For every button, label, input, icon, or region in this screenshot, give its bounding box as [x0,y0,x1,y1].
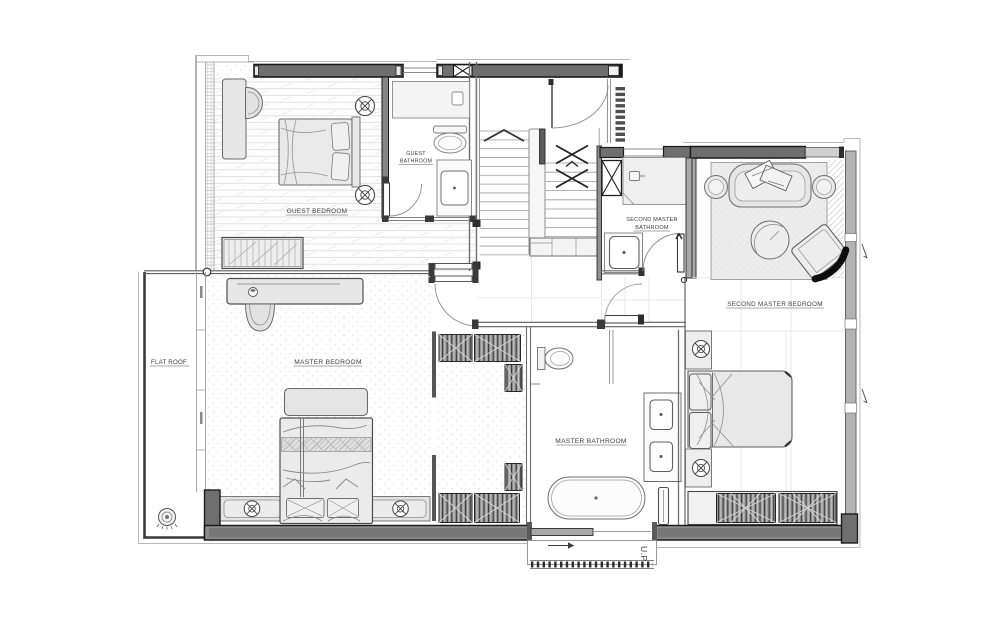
svg-text:SECOND MASTER: SECOND MASTER [626,217,677,223]
svg-text:GUEST BEDROOM: GUEST BEDROOM [287,208,348,215]
svg-text:U.P: U.P [639,546,649,562]
svg-text:SECOND MASTER BEDROOM: SECOND MASTER BEDROOM [727,301,823,308]
svg-text:BATHROOM: BATHROOM [635,225,669,231]
svg-text:MASTER BEDROOM: MASTER BEDROOM [294,359,362,366]
svg-text:MASTER BATHROOM: MASTER BATHROOM [555,438,626,445]
svg-text:GUEST: GUEST [406,151,426,157]
svg-text:FLAT ROOF: FLAT ROOF [151,359,187,366]
svg-text:BATHROOM: BATHROOM [400,159,433,165]
